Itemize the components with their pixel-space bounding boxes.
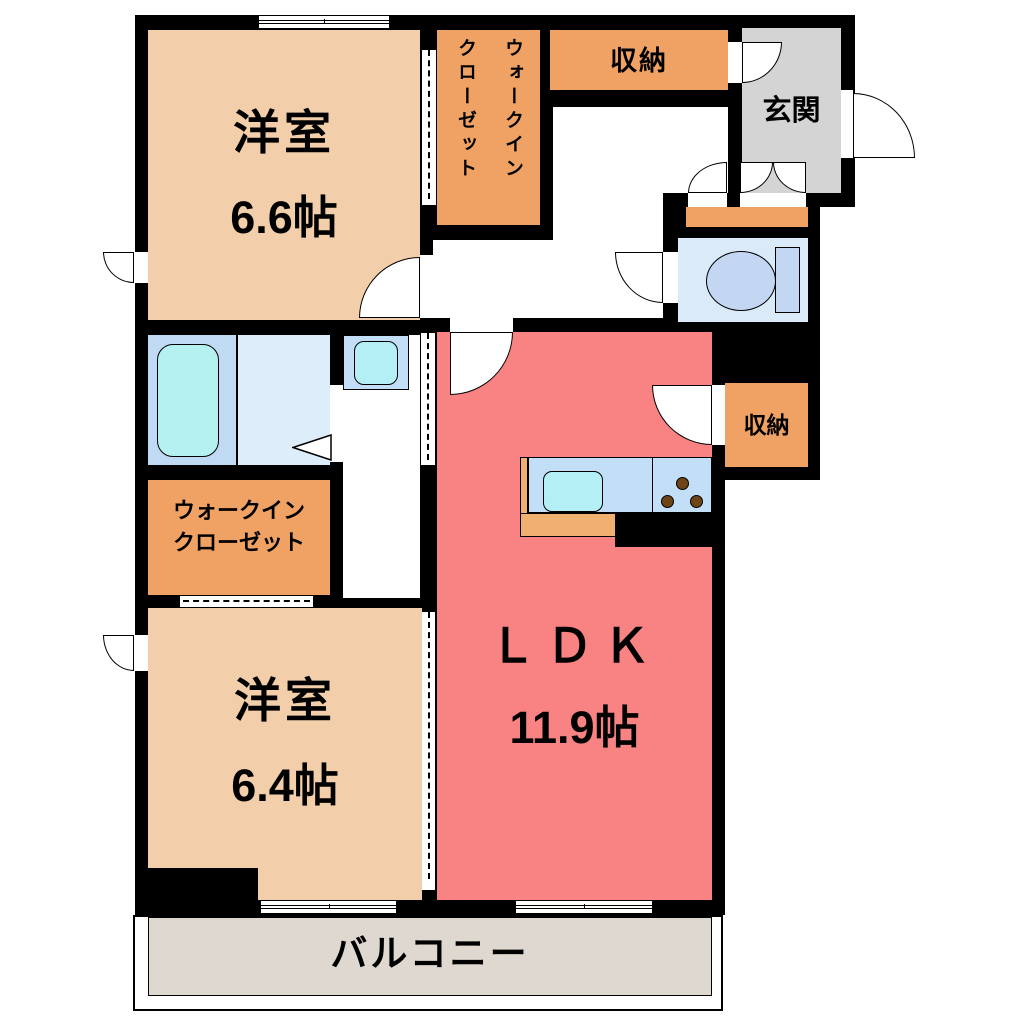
- window-swing: [103, 252, 134, 283]
- window: [515, 900, 653, 914]
- entrance-door-swing: [853, 93, 915, 158]
- room-bedroom-2: [258, 868, 422, 900]
- window-tick: [584, 904, 585, 909]
- label-wic-top: ウォークイン クローゼット: [440, 38, 536, 223]
- shoe-cabinet: [686, 207, 808, 227]
- label-entrance: 玄関: [742, 90, 841, 132]
- label-wic-bottom-line1: ウォークイン: [148, 496, 330, 526]
- kitchen-wall-block: [615, 513, 712, 547]
- door-swing: [688, 162, 727, 193]
- window-tick: [329, 904, 330, 909]
- label-storage-right: 収納: [725, 409, 808, 441]
- toilet-bowl: [706, 251, 776, 311]
- floor-plan: 洋室 6.6帖 ウォークイン クローゼット 収納 玄関 収納 ウォークイン クロ…: [0, 0, 1020, 1020]
- door-opening: [712, 385, 725, 445]
- label-balcony: バルコニー: [148, 928, 712, 978]
- label-bedroom2-size: 6.4帖: [148, 750, 422, 820]
- bathtub: [157, 344, 219, 457]
- label-ldk-size: 11.9帖: [437, 692, 712, 762]
- window-opening: [135, 635, 148, 671]
- door-opening: [688, 193, 727, 207]
- sliding-door: [421, 333, 435, 465]
- sliding-door: [422, 50, 436, 205]
- label-wic-top-line2: クローゼット: [442, 38, 489, 223]
- label-storage-top: 収納: [550, 42, 728, 80]
- label-bedroom1-size: 6.6帖: [148, 182, 420, 252]
- window: [260, 900, 397, 914]
- stove-burner: [676, 477, 689, 490]
- door-opening: [663, 252, 678, 303]
- sliding-door-track: [183, 600, 311, 602]
- window: [258, 15, 390, 29]
- door-opening: [450, 318, 513, 332]
- window-opening: [135, 252, 148, 283]
- door-opening: [740, 193, 806, 207]
- washbasin-bowl: [354, 341, 398, 385]
- kitchen-counter-divider: [652, 457, 653, 513]
- sliding-door-track: [428, 612, 430, 879]
- label-ldk-name: ＬＤＫ: [437, 610, 712, 680]
- label-wic-bottom-line2: クローゼット: [148, 528, 330, 558]
- label-bedroom2-name: 洋室: [148, 665, 422, 735]
- stove-burner: [661, 495, 674, 508]
- label-bedroom1-name: 洋室: [148, 97, 420, 167]
- closet-folding-door: [180, 596, 313, 607]
- kitchen-sink: [543, 471, 603, 512]
- window-swing: [103, 635, 134, 671]
- toilet-tank: [775, 247, 800, 313]
- label-wic-top-line1: ウォークイン: [489, 38, 536, 223]
- sliding-door-track: [428, 50, 430, 199]
- window-tick: [324, 19, 325, 24]
- sliding-door: [422, 612, 435, 890]
- door-opening: [420, 255, 434, 318]
- toilet-door-swing: [615, 252, 663, 303]
- kitchen-edge: [520, 513, 616, 537]
- front-door-opening: [841, 90, 853, 158]
- sliding-door-track: [427, 333, 429, 460]
- stove-burner: [690, 495, 703, 508]
- door-opening: [728, 42, 742, 83]
- room-bedroom-2: [148, 608, 422, 868]
- bath-door-marker: [292, 434, 332, 461]
